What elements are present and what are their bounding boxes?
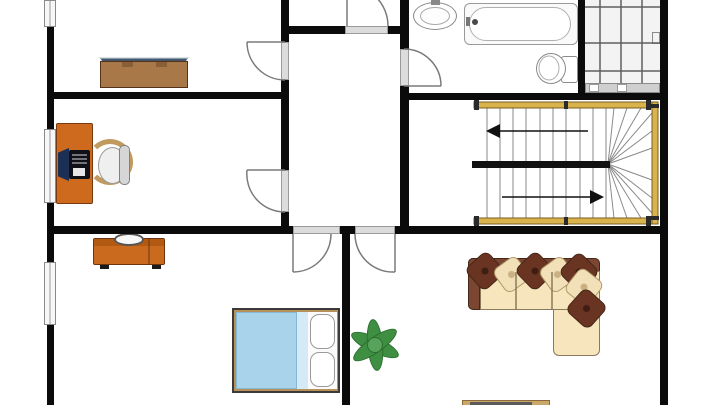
wall: [340, 226, 355, 234]
rail-post: [646, 100, 651, 110]
dresser-mirror: [114, 233, 144, 246]
rail-post: [564, 217, 568, 225]
bed-pillow: [310, 314, 335, 349]
stair-winder-tread: [608, 108, 614, 164]
drawing-table-body: [100, 61, 188, 88]
door-sill: [355, 226, 395, 234]
door-arc: [247, 42, 285, 80]
table-notch: [156, 62, 167, 67]
stair-rail: [474, 102, 652, 108]
bed-blanket: [236, 312, 297, 389]
door-sill: [400, 49, 409, 86]
bed-sheet-fold: [297, 312, 308, 389]
sink-basin: [420, 7, 450, 25]
window: [44, 262, 56, 325]
wall: [395, 226, 660, 234]
window: [44, 129, 56, 203]
rail-post: [474, 100, 479, 110]
table-notch: [122, 62, 133, 67]
threshold-notch: [589, 84, 599, 92]
wall: [281, 0, 289, 42]
wall: [289, 26, 345, 34]
stair-rail: [474, 218, 652, 224]
stair-winder-tread: [608, 131, 652, 164]
wall: [400, 0, 409, 49]
door-arc: [404, 49, 441, 86]
wall: [660, 0, 668, 405]
wall: [578, 0, 585, 96]
stair-winder-tread: [608, 164, 614, 218]
rail-post: [474, 216, 479, 226]
stair-divider: [472, 161, 610, 168]
wall: [47, 92, 281, 99]
wall: [47, 226, 293, 234]
threshold-notch: [617, 84, 627, 92]
stair-winder-tread: [608, 113, 652, 164]
door-sill: [281, 170, 289, 212]
office-chair-backrest: [119, 145, 130, 185]
wall: [342, 226, 350, 405]
rail-post: [651, 104, 659, 108]
floor-plan-canvas: [0, 0, 720, 405]
stair-winder-tread: [608, 108, 627, 164]
stair-winder-tread: [608, 164, 652, 180]
door-sill: [293, 226, 340, 234]
laptop-screen: [58, 148, 69, 181]
tiled-floor: [585, 0, 660, 96]
stair-winder-tread: [608, 164, 652, 198]
rail-post: [651, 216, 659, 220]
wall: [388, 26, 400, 34]
door-sill: [345, 26, 388, 34]
wall: [400, 93, 660, 100]
bed-pillow: [310, 352, 335, 387]
door-sill: [281, 42, 289, 80]
wall: [400, 86, 409, 234]
door-arc: [355, 234, 395, 272]
stair-winder-tread: [608, 164, 641, 218]
stairs-arrow-head: [590, 190, 604, 204]
tile-vent: [652, 32, 660, 44]
window: [44, 0, 56, 27]
wall: [281, 80, 289, 170]
door-arc: [347, 0, 388, 26]
stair-winder-tread: [608, 164, 652, 213]
door-arc: [247, 170, 285, 212]
stair-winder-tread: [608, 164, 627, 218]
dresser-foot: [100, 265, 109, 269]
dresser-foot: [152, 265, 161, 269]
door-arc: [293, 234, 331, 272]
rail-post: [564, 101, 568, 109]
bathtub-basin: [469, 7, 571, 41]
rail-post: [646, 216, 651, 226]
stairs-arrow-head: [486, 124, 500, 138]
floor-plan: [0, 0, 720, 405]
stair-winder-tread: [608, 108, 641, 164]
stair-rail: [652, 102, 658, 224]
plant-center: [367, 337, 383, 353]
toilet-bowl: [536, 53, 566, 84]
stair-winder-tread: [608, 148, 652, 164]
